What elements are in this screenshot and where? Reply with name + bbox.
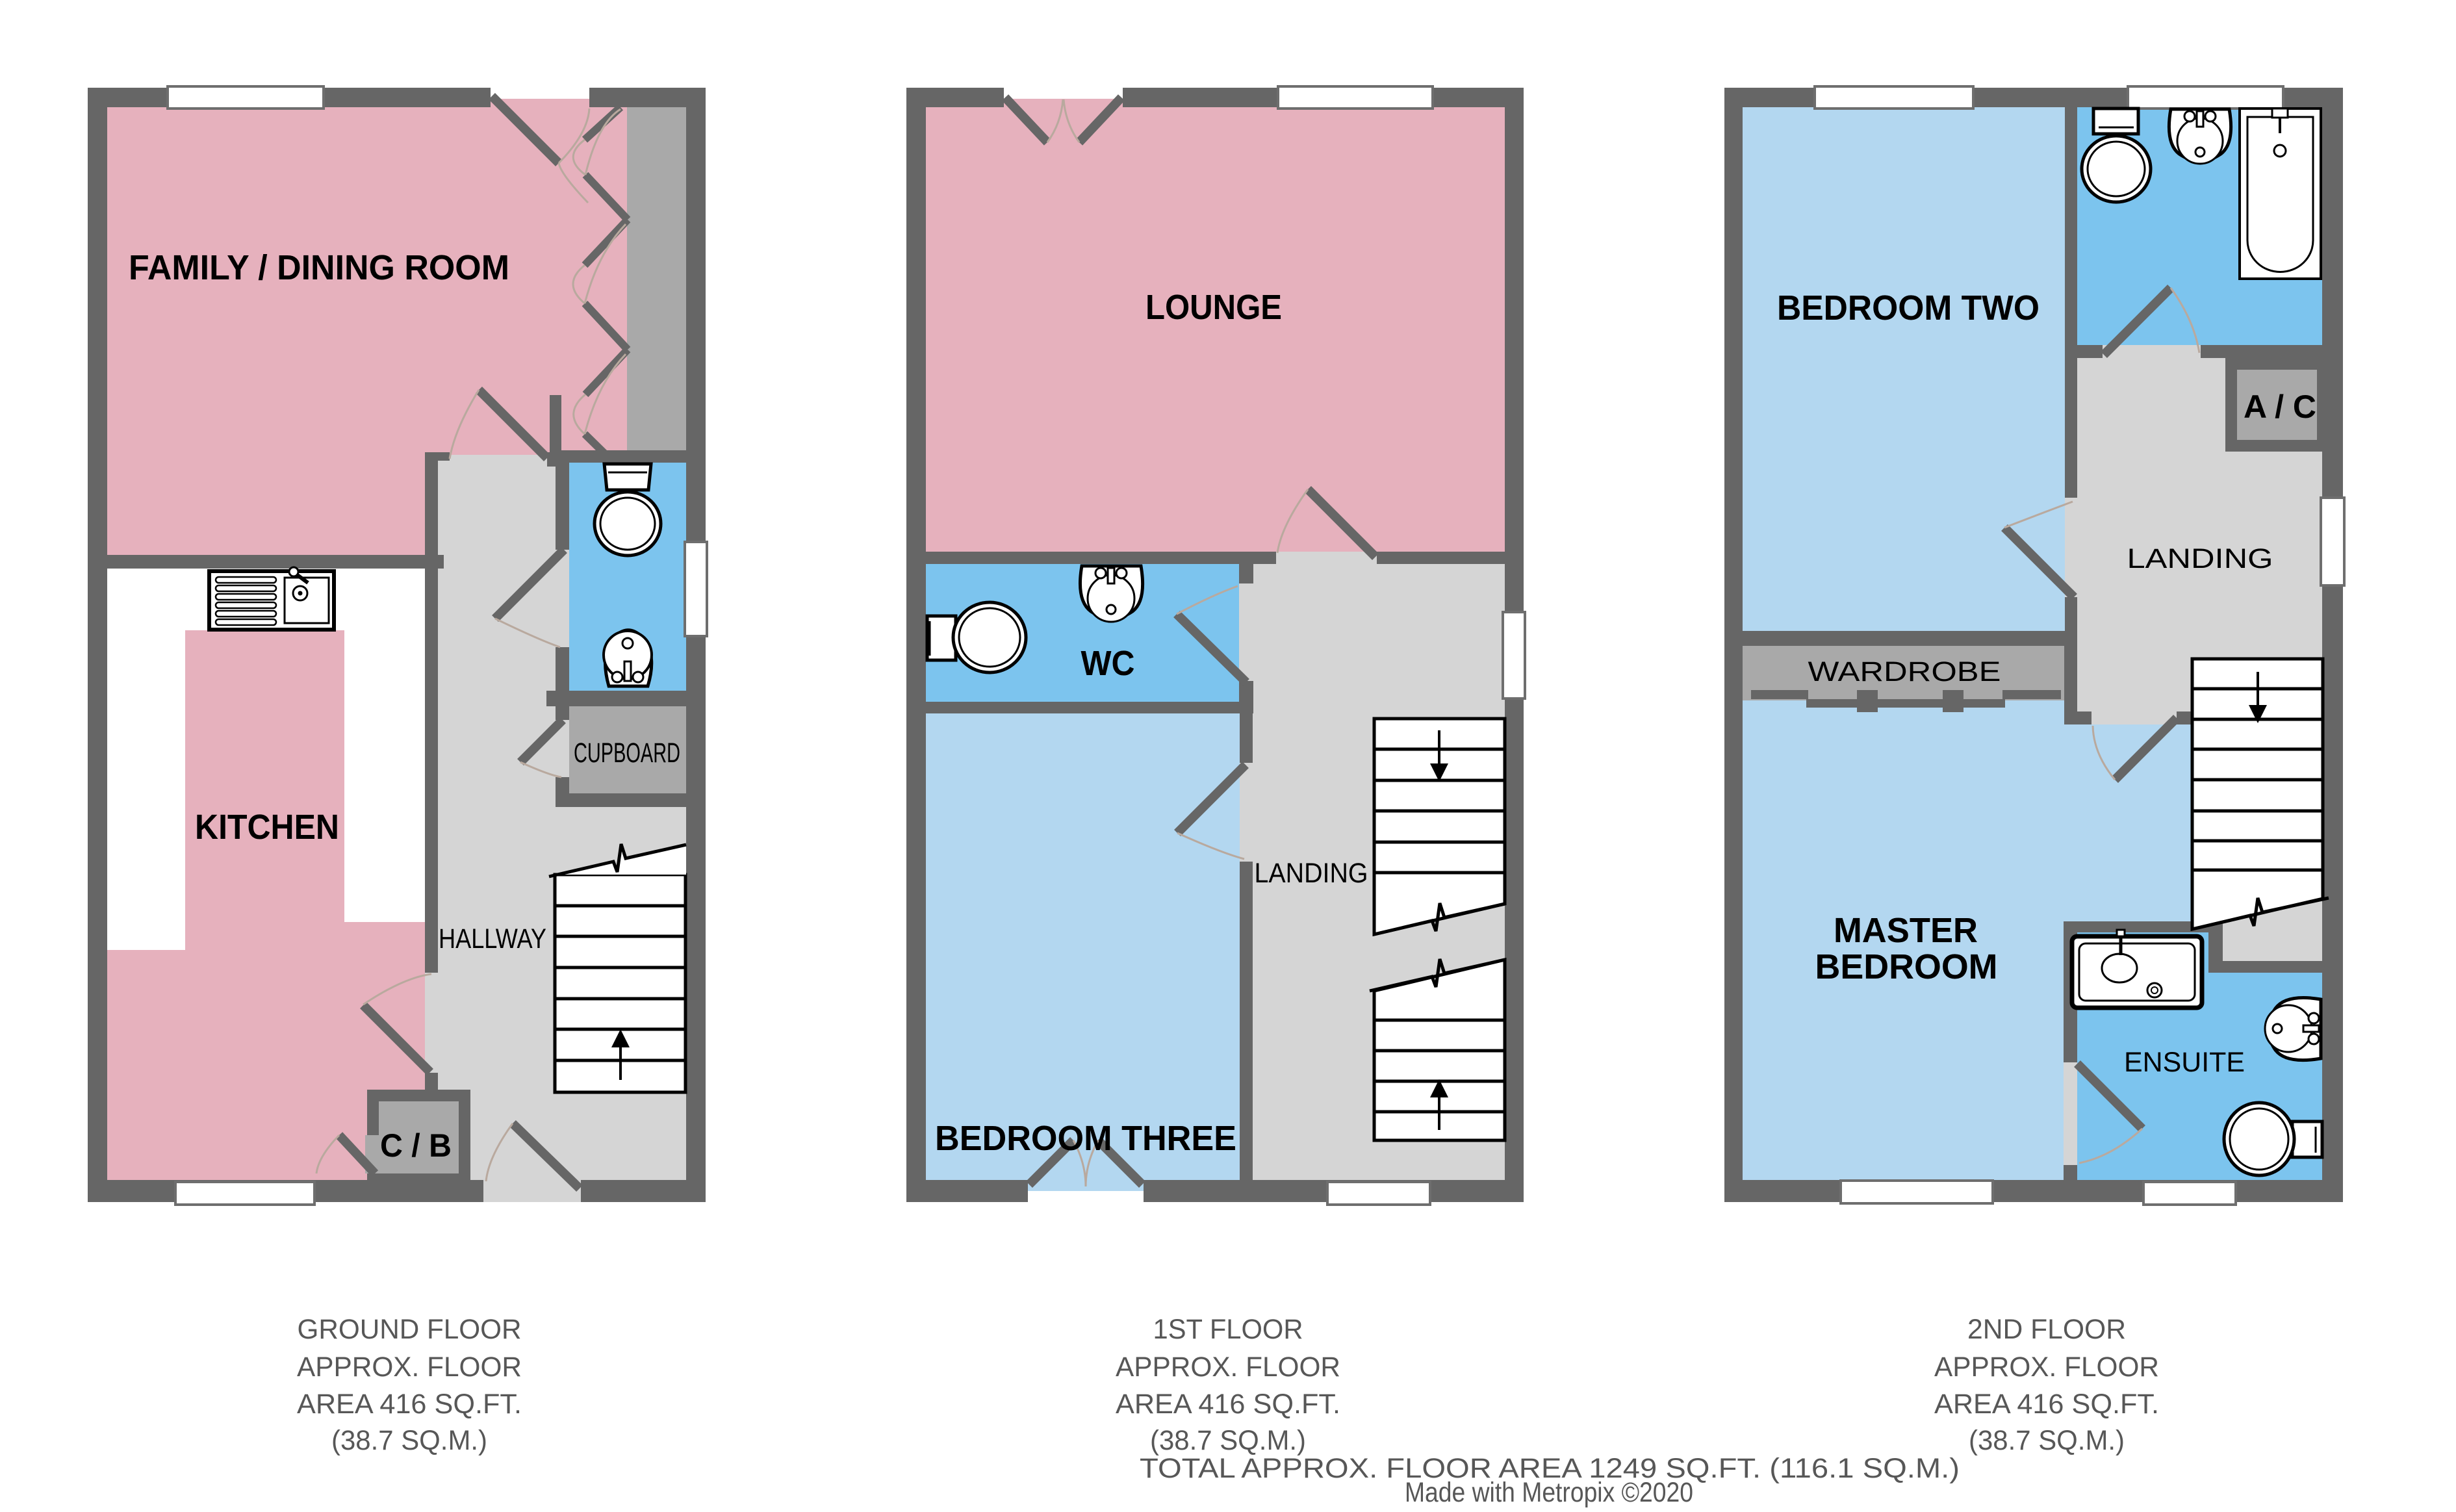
svg-text:APPROX. FLOOR: APPROX. FLOOR [1116,1352,1340,1383]
svg-text:WARDROBE: WARDROBE [1808,656,2001,687]
svg-text:FAMILY / DINING ROOM: FAMILY / DINING ROOM [129,248,509,287]
svg-text:BEDROOM: BEDROOM [1815,947,1998,986]
svg-text:LANDING: LANDING [2127,543,2273,574]
svg-text:ENSUITE: ENSUITE [2124,1047,2245,1078]
svg-text:CUPBOARD: CUPBOARD [574,737,680,769]
svg-text:WC: WC [1081,644,1135,683]
svg-text:Made with Metropix ©2020: Made with Metropix ©2020 [1405,1477,1693,1508]
svg-text:BEDROOM THREE: BEDROOM THREE [935,1119,1236,1158]
svg-text:APPROX. FLOOR: APPROX. FLOOR [297,1352,522,1383]
svg-text:(38.7 SQ.M.): (38.7 SQ.M.) [1150,1425,1306,1456]
svg-text:MASTER: MASTER [1834,911,1978,950]
svg-text:LANDING: LANDING [1255,858,1368,889]
svg-text:BEDROOM TWO: BEDROOM TWO [1777,288,2040,327]
svg-text:KITCHEN: KITCHEN [195,808,339,847]
svg-text:1ST FLOOR: 1ST FLOOR [1153,1314,1303,1345]
svg-text:(38.7 SQ.M.): (38.7 SQ.M.) [1969,1425,2125,1456]
svg-text:C / B: C / B [380,1127,452,1164]
svg-text:APPROX. FLOOR: APPROX. FLOOR [1934,1352,2159,1383]
svg-text:2ND FLOOR: 2ND FLOOR [1967,1314,2126,1345]
svg-text:(38.7 SQ.M.): (38.7 SQ.M.) [331,1425,487,1456]
svg-text:AREA 416 SQ.FT.: AREA 416 SQ.FT. [1934,1389,2159,1420]
svg-text:HALLWAY: HALLWAY [439,923,546,955]
svg-text:A / C: A / C [2244,389,2316,425]
svg-text:LOUNGE: LOUNGE [1145,288,1282,327]
svg-text:AREA 416 SQ.FT.: AREA 416 SQ.FT. [1116,1389,1340,1420]
svg-text:AREA 416 SQ.FT.: AREA 416 SQ.FT. [297,1389,522,1420]
svg-text:GROUND FLOOR: GROUND FLOOR [298,1314,522,1345]
